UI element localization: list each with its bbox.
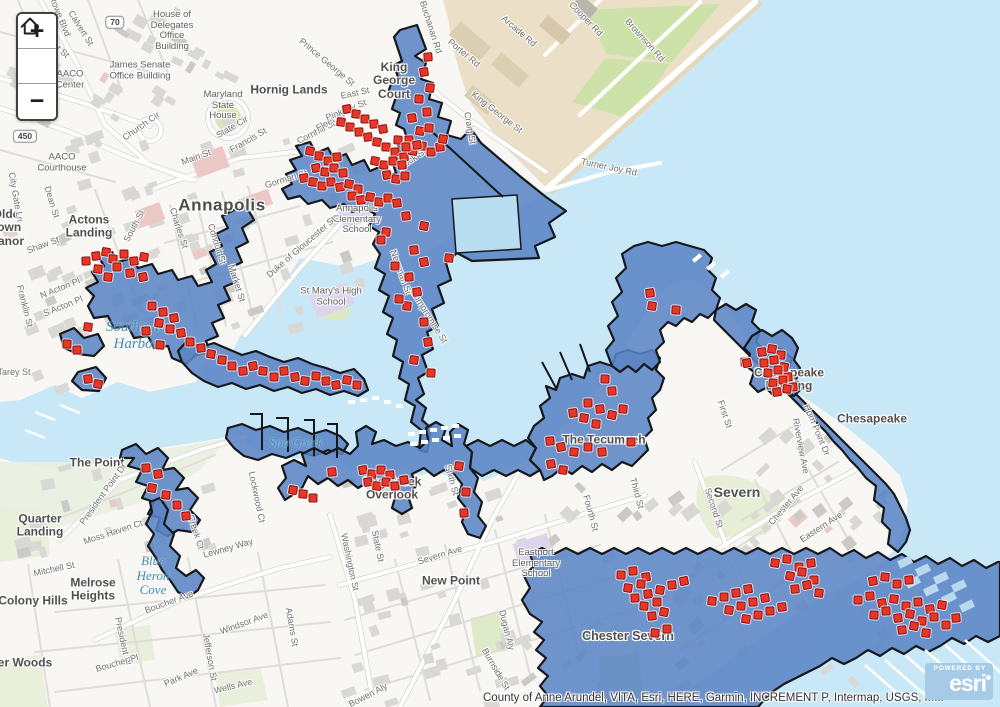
- map-point-marker[interactable]: [650, 628, 660, 638]
- home-icon: [18, 14, 42, 38]
- map-point-marker[interactable]: [153, 469, 163, 479]
- map-point-marker[interactable]: [444, 253, 454, 263]
- map-point-marker[interactable]: [288, 485, 298, 495]
- map-point-marker[interactable]: [569, 447, 579, 457]
- map-point-marker[interactable]: [412, 287, 422, 297]
- map-point-marker[interactable]: [655, 585, 665, 595]
- map-point-marker[interactable]: [741, 614, 751, 624]
- map-point-marker[interactable]: [238, 366, 248, 376]
- map-point-marker[interactable]: [868, 576, 878, 586]
- map-point-marker[interactable]: [83, 322, 93, 332]
- map-point-marker[interactable]: [579, 413, 589, 423]
- map-point-marker[interactable]: [853, 595, 862, 604]
- map-point-marker[interactable]: [636, 579, 645, 588]
- map-point-marker[interactable]: [774, 366, 783, 375]
- map-point-marker[interactable]: [757, 347, 767, 357]
- map-point-marker[interactable]: [426, 368, 435, 377]
- map-point-marker[interactable]: [806, 558, 816, 568]
- map-point-marker[interactable]: [400, 171, 409, 180]
- zoom-out-button[interactable]: −: [18, 84, 56, 119]
- basemap-canvas: [0, 0, 1000, 707]
- map-point-marker[interactable]: [639, 601, 649, 611]
- map-point-marker[interactable]: [769, 355, 779, 365]
- map-point-marker[interactable]: [269, 372, 278, 381]
- map-point-marker[interactable]: [719, 592, 728, 601]
- map-point-marker[interactable]: [404, 272, 414, 282]
- map-point-marker[interactable]: [401, 142, 410, 151]
- esri-logo: esri: [949, 673, 986, 695]
- map-point-marker[interactable]: [790, 584, 800, 594]
- map-point-marker[interactable]: [782, 554, 792, 564]
- map-point-marker[interactable]: [628, 566, 637, 575]
- map-point-marker[interactable]: [397, 160, 407, 170]
- map-point-marker[interactable]: [327, 467, 337, 477]
- map-point-marker[interactable]: [724, 605, 734, 615]
- map-point-marker[interactable]: [748, 597, 757, 606]
- map-point-marker[interactable]: [869, 610, 878, 619]
- map-point-marker[interactable]: [125, 268, 135, 278]
- map-point-marker[interactable]: [407, 113, 417, 123]
- map-point-marker[interactable]: [181, 511, 191, 521]
- map-point-marker[interactable]: [583, 442, 592, 451]
- flood-zone-polygon: [466, 440, 540, 476]
- map-point-marker[interactable]: [913, 597, 922, 606]
- map-point-marker[interactable]: [401, 211, 411, 221]
- map-point-marker[interactable]: [423, 337, 433, 347]
- map-point-marker[interactable]: [185, 337, 194, 346]
- map-point-marker[interactable]: [390, 147, 399, 156]
- map-point-marker[interactable]: [881, 606, 890, 615]
- map-point-marker[interactable]: [546, 459, 556, 469]
- map-point-marker[interactable]: [618, 404, 628, 414]
- map-attribution: County of Anne Arundel, VITA, Esri, HERE…: [483, 692, 944, 704]
- map-point-marker[interactable]: [147, 301, 156, 310]
- map-point-marker[interactable]: [409, 355, 419, 365]
- map-point-marker[interactable]: [81, 256, 90, 265]
- map-point-marker[interactable]: [381, 477, 390, 486]
- map-point-marker[interactable]: [419, 257, 429, 267]
- map-point-marker[interactable]: [314, 151, 324, 161]
- map-point-marker[interactable]: [607, 410, 617, 420]
- map-point-marker[interactable]: [331, 380, 341, 390]
- map-point-marker[interactable]: [206, 349, 216, 359]
- map-point-marker[interactable]: [402, 301, 412, 311]
- map-point-marker[interactable]: [937, 600, 947, 610]
- map-point-marker[interactable]: [679, 576, 689, 586]
- home-button[interactable]: [18, 49, 56, 84]
- map-point-marker[interactable]: [165, 324, 174, 333]
- map-point-marker[interactable]: [760, 593, 770, 603]
- map-point-marker[interactable]: [176, 328, 186, 338]
- map-point-marker[interactable]: [600, 374, 609, 383]
- map-point-marker[interactable]: [865, 591, 875, 601]
- zoom-controls: + −: [16, 12, 58, 121]
- map-point-marker[interactable]: [300, 376, 310, 386]
- map-point-marker[interactable]: [154, 318, 164, 328]
- map-point-marker[interactable]: [290, 372, 300, 382]
- map-point-marker[interactable]: [93, 379, 103, 389]
- map-point-marker[interactable]: [889, 594, 899, 604]
- map-point-marker[interactable]: [759, 358, 768, 367]
- map-point-marker[interactable]: [311, 371, 320, 380]
- map-point-marker[interactable]: [62, 339, 71, 348]
- map-point-marker[interactable]: [892, 579, 901, 588]
- map-point-marker[interactable]: [93, 264, 103, 274]
- map-point-marker[interactable]: [942, 621, 951, 630]
- map-point-marker[interactable]: [893, 613, 903, 623]
- map-point-marker[interactable]: [390, 261, 399, 270]
- map-point-marker[interactable]: [196, 343, 206, 353]
- map-point-marker[interactable]: [423, 52, 433, 62]
- map-point-marker[interactable]: [129, 256, 139, 266]
- map-point-marker[interactable]: [345, 122, 354, 131]
- map-point-marker[interactable]: [643, 589, 653, 599]
- map-point-marker[interactable]: [797, 567, 807, 577]
- map-point-marker[interactable]: [158, 307, 168, 317]
- map-point-marker[interactable]: [336, 117, 346, 127]
- map-point-marker[interactable]: [138, 272, 148, 282]
- map-point-marker[interactable]: [782, 384, 792, 394]
- map-point-marker[interactable]: [228, 362, 237, 371]
- map-point-marker[interactable]: [169, 313, 179, 323]
- map-point-marker[interactable]: [659, 607, 669, 617]
- map-point-marker[interactable]: [390, 481, 399, 490]
- map-point-marker[interactable]: [83, 374, 93, 384]
- map-point-marker[interactable]: [352, 380, 361, 389]
- map-point-marker[interactable]: [731, 588, 741, 598]
- map-point-marker[interactable]: [909, 621, 919, 631]
- map-point-marker[interactable]: [419, 221, 429, 231]
- map-point-marker[interactable]: [399, 475, 409, 485]
- map-point-marker[interactable]: [425, 83, 435, 93]
- map-point-marker[interactable]: [545, 436, 555, 446]
- map-point-marker[interactable]: [72, 345, 81, 354]
- map-point-marker[interactable]: [103, 272, 113, 282]
- map-point-marker[interactable]: [951, 613, 961, 623]
- map-point-marker[interactable]: [785, 571, 795, 581]
- map-point-marker[interactable]: [424, 123, 433, 132]
- map-point-marker[interactable]: [777, 602, 787, 612]
- map-point-marker[interactable]: [814, 588, 824, 598]
- map-point-marker[interactable]: [647, 301, 657, 311]
- map-point-marker[interactable]: [381, 142, 390, 151]
- map-point-marker[interactable]: [329, 163, 338, 172]
- map-point-marker[interactable]: [461, 487, 470, 496]
- map-point-marker[interactable]: [320, 167, 330, 177]
- map-point-marker[interactable]: [155, 340, 165, 350]
- map-point-marker[interactable]: [419, 317, 428, 326]
- map-point-marker[interactable]: [763, 368, 773, 378]
- map-point-marker[interactable]: [139, 252, 149, 262]
- map-point-marker[interactable]: [438, 134, 448, 144]
- map-point-marker[interactable]: [753, 610, 762, 619]
- map-point-marker[interactable]: [412, 140, 422, 150]
- map-point-marker[interactable]: [217, 355, 227, 365]
- map-point-marker[interactable]: [392, 198, 402, 208]
- map-point-marker[interactable]: [378, 124, 388, 134]
- map-point-marker[interactable]: [921, 628, 931, 638]
- map-point-marker[interactable]: [897, 625, 907, 635]
- map-point-marker[interactable]: [279, 366, 289, 376]
- map-point-marker[interactable]: [742, 358, 752, 368]
- map-point-marker[interactable]: [321, 376, 330, 385]
- map-point-marker[interactable]: [645, 288, 655, 298]
- map-point-marker[interactable]: [770, 558, 780, 568]
- map-point-marker[interactable]: [422, 107, 431, 116]
- map-point-marker[interactable]: [905, 609, 915, 619]
- map-point-marker[interactable]: [904, 575, 914, 585]
- map-point-marker[interactable]: [342, 375, 352, 385]
- map-point-marker[interactable]: [591, 419, 601, 429]
- map-point-marker[interactable]: [426, 147, 435, 156]
- map-point-marker[interactable]: [376, 465, 385, 474]
- map-point-marker[interactable]: [707, 596, 717, 606]
- map-point-marker[interactable]: [663, 625, 672, 634]
- map-point-marker[interactable]: [558, 465, 568, 475]
- map-point-marker[interactable]: [147, 483, 157, 493]
- map-point-marker[interactable]: [765, 606, 774, 615]
- map-point-marker[interactable]: [802, 580, 812, 590]
- map-point-marker[interactable]: [627, 438, 636, 447]
- map-point-marker[interactable]: [172, 500, 181, 509]
- map-point-marker[interactable]: [338, 168, 348, 178]
- map-point-marker[interactable]: [258, 366, 268, 376]
- map-point-marker[interactable]: [360, 114, 369, 123]
- map-point-marker[interactable]: [671, 305, 680, 314]
- map-point-marker[interactable]: [583, 398, 592, 407]
- map-point-marker[interactable]: [141, 326, 150, 335]
- map-point-marker[interactable]: [736, 601, 745, 610]
- map-point-marker[interactable]: [332, 152, 342, 162]
- map-point-marker[interactable]: [630, 593, 639, 602]
- map-point-marker[interactable]: [454, 461, 464, 471]
- map-point-marker[interactable]: [351, 109, 361, 119]
- map-point-marker[interactable]: [383, 193, 392, 202]
- map-point-marker[interactable]: [389, 157, 398, 166]
- map-point-marker[interactable]: [772, 387, 782, 397]
- map-point-marker[interactable]: [652, 597, 661, 606]
- powered-by-esri-badge[interactable]: POWERED BY esri: [925, 663, 993, 700]
- map-point-marker[interactable]: [248, 361, 258, 371]
- map-point-marker[interactable]: [394, 294, 403, 303]
- map-point-marker[interactable]: [607, 386, 616, 395]
- map-point-marker[interactable]: [113, 263, 122, 272]
- map-point-marker[interactable]: [880, 572, 890, 582]
- map-point-marker[interactable]: [929, 612, 938, 621]
- map-point-marker[interactable]: [377, 236, 386, 245]
- map-point-marker[interactable]: [91, 251, 101, 261]
- map-point-marker[interactable]: [414, 94, 423, 103]
- map-point-marker[interactable]: [556, 442, 566, 452]
- map-point-marker[interactable]: [616, 570, 625, 579]
- map-point-marker[interactable]: [667, 580, 677, 590]
- map-point-marker[interactable]: [647, 611, 657, 621]
- map-point-marker[interactable]: [374, 197, 384, 207]
- map-point-marker[interactable]: [119, 249, 128, 258]
- map-point-marker[interactable]: [419, 67, 429, 77]
- map-point-marker[interactable]: [597, 447, 607, 457]
- map-point-marker[interactable]: [743, 584, 753, 594]
- map-point-marker[interactable]: [141, 463, 150, 472]
- map-point-marker[interactable]: [568, 408, 578, 418]
- map-point-marker[interactable]: [161, 490, 171, 500]
- map-point-marker[interactable]: [309, 494, 318, 503]
- map-point-marker[interactable]: [298, 489, 308, 499]
- map-point-marker[interactable]: [317, 181, 326, 190]
- map-point-marker[interactable]: [623, 583, 633, 593]
- map-point-marker[interactable]: [459, 508, 468, 517]
- map-point-marker[interactable]: [409, 245, 419, 255]
- map-viewport[interactable]: AnnapolisKing George CourtHornig LandsAc…: [0, 0, 1000, 707]
- map-point-marker[interactable]: [595, 404, 605, 414]
- map-point-marker[interactable]: [379, 160, 389, 170]
